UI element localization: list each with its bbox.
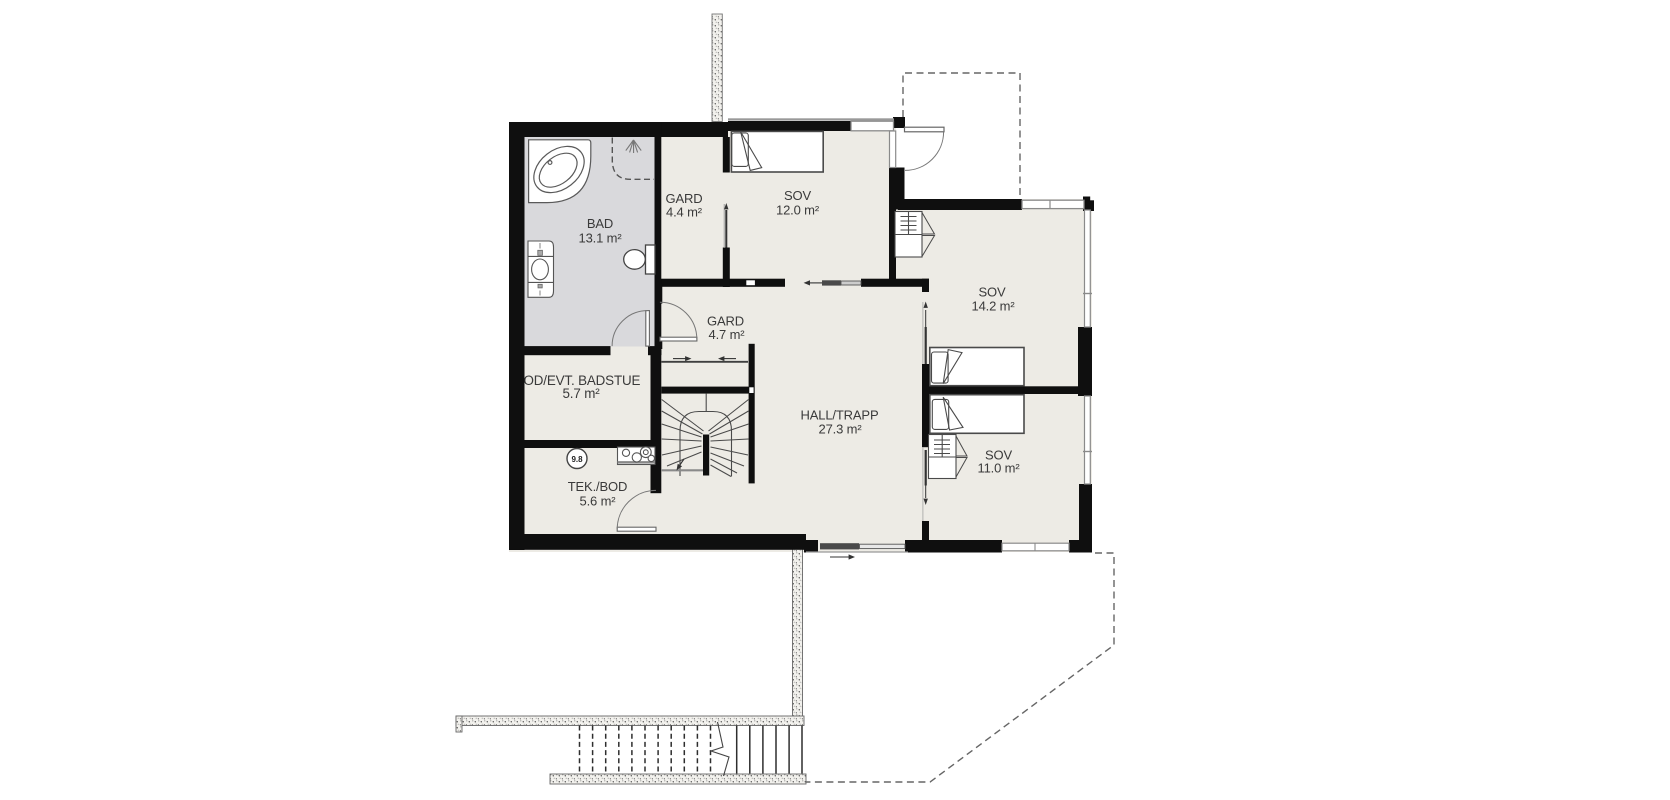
svg-text:HALL/TRAPP: HALL/TRAPP (801, 408, 879, 423)
svg-text:9.8: 9.8 (571, 455, 583, 464)
svg-text:27.3 m²: 27.3 m² (818, 422, 862, 437)
svg-text:SOV: SOV (784, 188, 811, 203)
svg-text:4.7 m²: 4.7 m² (709, 327, 746, 342)
svg-text:14.2 m²: 14.2 m² (971, 299, 1015, 314)
svg-text:TEK./BOD: TEK./BOD (568, 479, 627, 494)
svg-text:5.6 m²: 5.6 m² (580, 494, 617, 509)
svg-text:5.7 m²: 5.7 m² (562, 386, 600, 401)
svg-text:BAD: BAD (587, 216, 613, 231)
svg-text:11.0 m²: 11.0 m² (977, 461, 1020, 476)
svg-text:12.0 m²: 12.0 m² (776, 203, 820, 218)
svg-text:SOV: SOV (978, 285, 1005, 300)
svg-text:4.4 m²: 4.4 m² (666, 205, 703, 220)
svg-text:13.1 m²: 13.1 m² (578, 231, 622, 246)
